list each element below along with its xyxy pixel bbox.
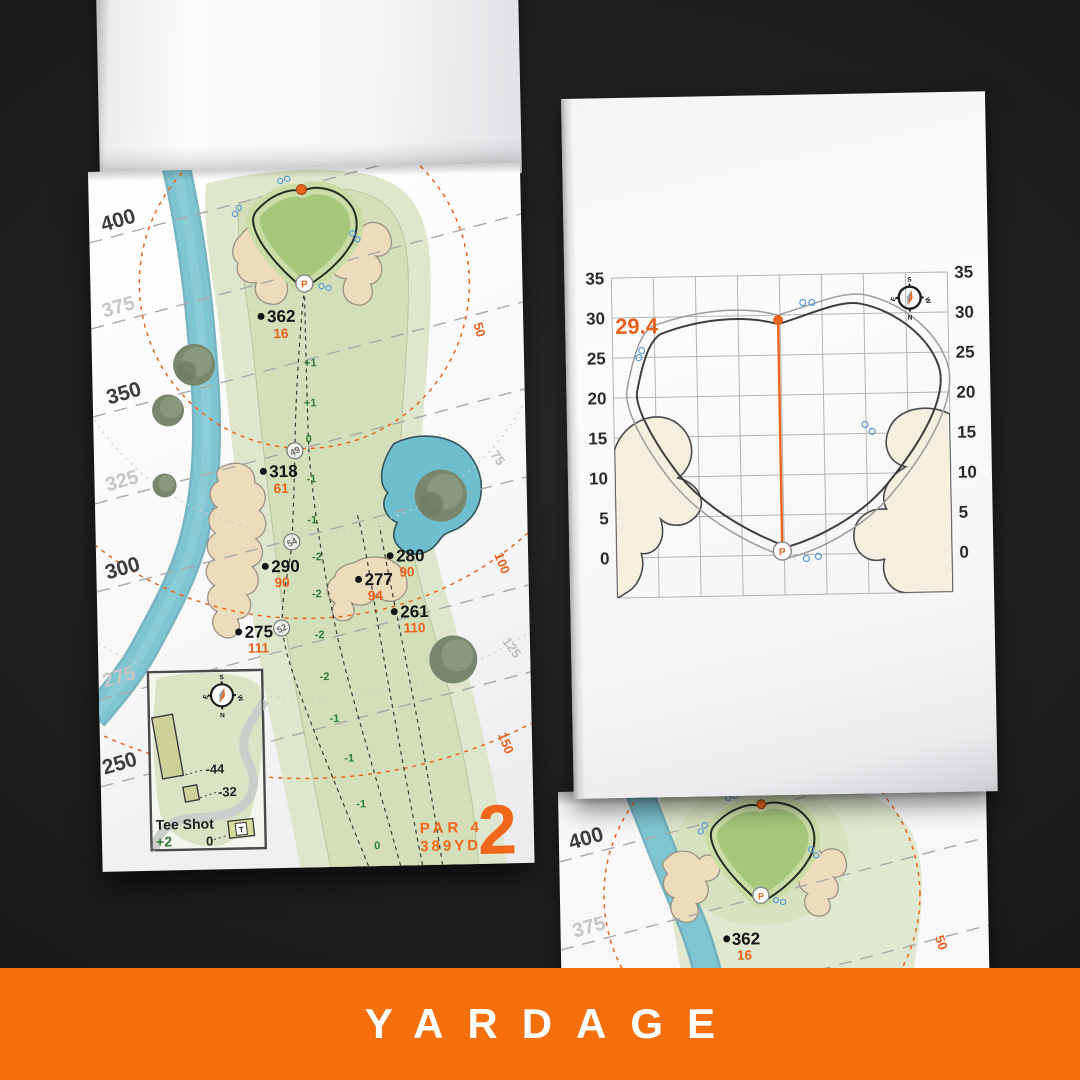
approach-dot xyxy=(757,800,766,809)
hole-yardage: 389YD xyxy=(420,837,481,855)
axis-labels-left: 35 30 25 20 15 10 5 0 xyxy=(585,269,609,568)
svg-text:110: 110 xyxy=(403,620,425,635)
svg-text:-1: -1 xyxy=(329,713,339,725)
svg-text:-1: -1 xyxy=(356,798,366,810)
svg-text:362: 362 xyxy=(267,307,296,327)
tee-box-small xyxy=(183,785,199,802)
axis-labels-right: 35 30 25 20 15 10 5 0 xyxy=(954,262,978,561)
distance-label: 375 xyxy=(99,292,137,322)
river xyxy=(88,165,213,717)
svg-text:5: 5 xyxy=(599,509,609,528)
arc-label-125: 125 xyxy=(500,634,525,660)
distance-label: 300 xyxy=(103,553,143,585)
approach-dot xyxy=(296,184,306,194)
svg-text:E: E xyxy=(890,295,898,302)
hole-par: PAR 4 xyxy=(420,819,483,837)
tee-marker-icon: T xyxy=(228,819,255,839)
hole-map-page: 50 75 100 125 150 400 375 350 325 300 27… xyxy=(88,163,535,872)
svg-text:10: 10 xyxy=(958,462,977,481)
arc-label-75: 75 xyxy=(488,448,509,469)
svg-text:-2: -2 xyxy=(312,588,322,600)
svg-text:-1: -1 xyxy=(344,753,354,765)
svg-text:-1: -1 xyxy=(307,514,317,526)
svg-text:S: S xyxy=(219,674,224,681)
svg-text:0: 0 xyxy=(374,840,380,852)
green-detail-graphic: P 35 30 25 20 15 10 5 0 35 3 xyxy=(561,91,998,799)
pin-icon: P xyxy=(773,542,791,560)
under-page: P 400 375 50 362 16 xyxy=(558,784,989,978)
svg-text:-2: -2 xyxy=(315,629,325,641)
svg-text:30: 30 xyxy=(586,309,605,328)
tee-offset: -32 xyxy=(218,784,237,799)
inset-score: +2 xyxy=(156,833,173,849)
hole-map-graphic: 50 75 100 125 150 400 375 350 325 300 27… xyxy=(88,163,535,872)
svg-text:90: 90 xyxy=(399,564,414,579)
svg-text:61: 61 xyxy=(274,481,290,496)
svg-text:30: 30 xyxy=(955,302,974,321)
hole-number: 2 xyxy=(477,790,518,869)
arc-label-100: 100 xyxy=(491,550,513,576)
svg-text:94: 94 xyxy=(368,588,384,603)
tee-shot-inset: S N W E -44 -32 Tee Shot +2 0 T xyxy=(147,669,268,850)
green-depth-value: 29.4 xyxy=(615,313,659,339)
svg-text:90: 90 xyxy=(274,575,289,590)
svg-text:35: 35 xyxy=(954,262,973,281)
yardage-book-scene: 50 75 100 125 150 400 375 350 325 300 27… xyxy=(0,0,1080,1080)
svg-text:16: 16 xyxy=(737,947,753,962)
svg-text:15: 15 xyxy=(588,429,607,448)
svg-text:-2: -2 xyxy=(320,671,330,683)
svg-text:277: 277 xyxy=(364,570,393,590)
svg-text:-1: -1 xyxy=(306,473,316,485)
svg-text:5: 5 xyxy=(958,503,968,522)
svg-text:P: P xyxy=(758,891,764,901)
svg-text:10: 10 xyxy=(589,469,608,488)
arc-label-50: 50 xyxy=(470,321,488,339)
svg-text:0: 0 xyxy=(600,549,610,568)
tee-offset: 0 xyxy=(206,834,214,849)
svg-text:25: 25 xyxy=(956,342,975,361)
svg-text:16: 16 xyxy=(273,326,289,341)
svg-text:N: N xyxy=(908,315,913,322)
compass-icon: S N W E xyxy=(889,276,932,322)
svg-text:+1: +1 xyxy=(304,357,317,369)
svg-text:275: 275 xyxy=(244,622,273,642)
svg-text:P: P xyxy=(779,547,786,558)
under-page-graphic: P 400 375 50 362 16 xyxy=(558,784,989,978)
marker-275: 275111 xyxy=(235,622,274,656)
svg-text:15: 15 xyxy=(957,422,976,441)
green-detail-page: P 35 30 25 20 15 10 5 0 35 3 xyxy=(561,91,998,799)
svg-text:P: P xyxy=(301,279,308,290)
svg-text:W: W xyxy=(923,297,932,306)
svg-text:0: 0 xyxy=(306,433,312,445)
arc-label-50: 50 xyxy=(932,933,951,952)
tee-offset: -44 xyxy=(205,761,225,776)
distance-label: 325 xyxy=(103,466,141,496)
svg-text:+1: +1 xyxy=(304,397,317,409)
svg-text:-2: -2 xyxy=(312,551,322,563)
pin-icon: P xyxy=(296,275,313,292)
svg-text:261: 261 xyxy=(400,602,429,622)
svg-text:280: 280 xyxy=(396,546,425,566)
svg-text:35: 35 xyxy=(585,269,604,288)
svg-text:20: 20 xyxy=(956,382,975,401)
svg-text:318: 318 xyxy=(269,462,298,482)
distance-label: 375 xyxy=(570,912,608,942)
distance-label: 250 xyxy=(100,748,140,780)
inset-title: Tee Shot xyxy=(156,816,215,833)
arc-label-150: 150 xyxy=(495,730,517,756)
distance-label: 400 xyxy=(566,823,606,855)
svg-text:25: 25 xyxy=(587,349,606,368)
svg-text:362: 362 xyxy=(732,929,761,949)
svg-text:N: N xyxy=(220,712,225,719)
left-flipped-page xyxy=(96,0,522,182)
banner-title: YARDAGE xyxy=(341,1000,739,1048)
svg-text:0: 0 xyxy=(959,543,969,562)
svg-text:20: 20 xyxy=(587,389,606,408)
svg-text:111: 111 xyxy=(248,640,270,655)
pin-icon: P xyxy=(753,887,769,903)
svg-text:290: 290 xyxy=(271,557,300,577)
svg-text:S: S xyxy=(907,277,912,284)
yardage-banner: YARDAGE xyxy=(0,968,1080,1080)
